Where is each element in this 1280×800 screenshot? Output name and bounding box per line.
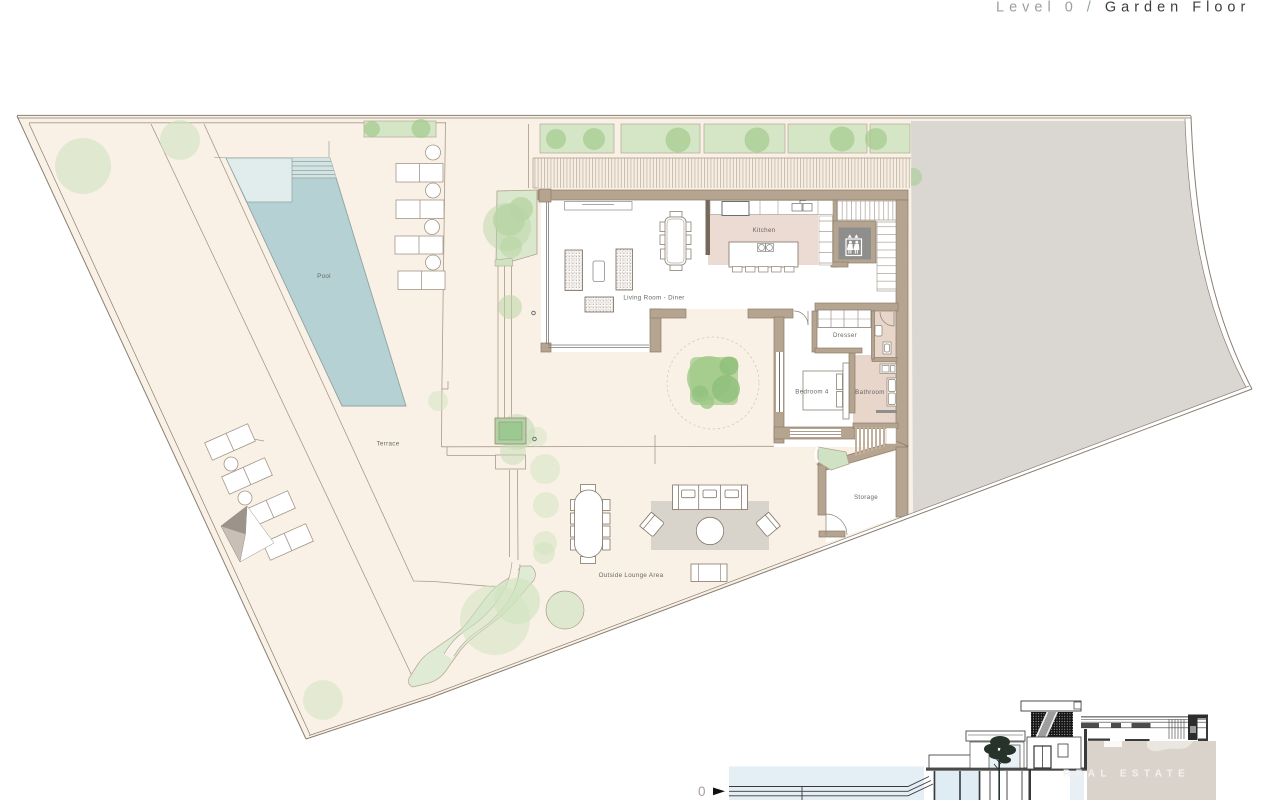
svg-text:Level 0 / Garden Floor: Level 0 / Garden Floor [996, 0, 1250, 16]
svg-text:Kitchen: Kitchen [752, 227, 775, 234]
svg-text:Terrace: Terrace [376, 441, 399, 448]
svg-text:Storage: Storage [854, 494, 878, 501]
svg-text:Bathroom: Bathroom [855, 389, 885, 396]
svg-text:Living Room - Diner: Living Room - Diner [623, 295, 684, 302]
svg-text:Bedroom 4: Bedroom 4 [795, 389, 829, 396]
svg-text:REAL ESTATE: REAL ESTATE [1063, 769, 1190, 780]
svg-text:Outside Lounge Area: Outside Lounge Area [599, 572, 664, 579]
svg-text:0: 0 [698, 784, 706, 799]
svg-text:Pool: Pool [317, 273, 331, 280]
svg-text:Dresser: Dresser [833, 332, 857, 339]
